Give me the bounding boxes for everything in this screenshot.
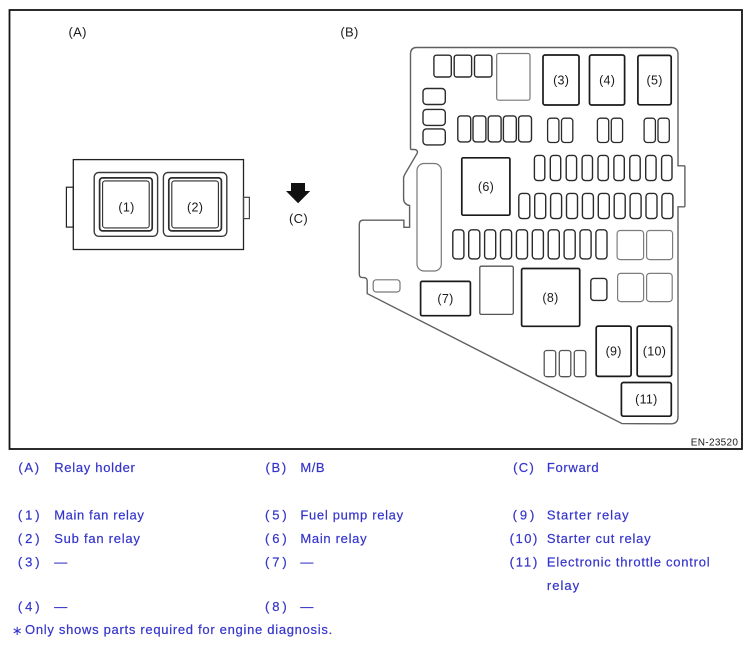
svg-text:Sub fan relay: Sub fan relay bbox=[54, 531, 140, 546]
svg-text:(A): (A) bbox=[68, 25, 86, 40]
svg-text:(3): (3) bbox=[553, 74, 569, 88]
svg-text:(2): (2) bbox=[187, 201, 203, 215]
svg-text:(1): (1) bbox=[18, 508, 40, 523]
svg-text:—: — bbox=[300, 599, 313, 614]
svg-text:(7): (7) bbox=[437, 292, 453, 306]
svg-text:Fuel pump relay: Fuel pump relay bbox=[300, 508, 403, 523]
svg-text:—: — bbox=[54, 599, 67, 614]
svg-text:(7): (7) bbox=[265, 555, 287, 570]
svg-text:(C): (C) bbox=[513, 460, 534, 475]
svg-text:(5): (5) bbox=[647, 74, 663, 88]
svg-text:(B): (B) bbox=[266, 460, 287, 475]
svg-text:EN-23520: EN-23520 bbox=[691, 437, 739, 448]
svg-text:—: — bbox=[300, 555, 313, 570]
svg-text:(2): (2) bbox=[18, 531, 40, 546]
svg-text:Main relay: Main relay bbox=[300, 531, 367, 546]
svg-text:Electronic throttle control: Electronic throttle control bbox=[547, 555, 710, 570]
svg-text:(9): (9) bbox=[606, 345, 622, 359]
svg-text:(4): (4) bbox=[599, 74, 615, 88]
svg-text:(11): (11) bbox=[510, 555, 538, 570]
svg-text:(6): (6) bbox=[478, 180, 494, 194]
svg-text:Relay holder: Relay holder bbox=[54, 460, 135, 475]
svg-text:(3): (3) bbox=[18, 555, 40, 570]
svg-text:(10): (10) bbox=[510, 531, 538, 546]
svg-text:(5): (5) bbox=[265, 508, 287, 523]
svg-text:Only shows parts required for: Only shows parts required for engine dia… bbox=[25, 622, 333, 637]
svg-text:(11): (11) bbox=[635, 393, 658, 407]
svg-text:(6): (6) bbox=[265, 531, 287, 546]
svg-text:(1): (1) bbox=[118, 201, 134, 215]
svg-text:(8): (8) bbox=[265, 599, 287, 614]
svg-text:relay: relay bbox=[547, 578, 580, 593]
svg-text:(10): (10) bbox=[643, 345, 666, 359]
svg-text:∗: ∗ bbox=[12, 623, 23, 638]
svg-text:(8): (8) bbox=[542, 291, 558, 305]
svg-text:—: — bbox=[54, 555, 67, 570]
svg-text:(4): (4) bbox=[18, 599, 40, 614]
svg-text:Forward: Forward bbox=[547, 460, 599, 475]
svg-text:Main fan relay: Main fan relay bbox=[54, 508, 144, 523]
svg-text:(C): (C) bbox=[289, 211, 308, 226]
svg-text:(A): (A) bbox=[18, 460, 39, 475]
svg-text:(B): (B) bbox=[340, 25, 358, 40]
svg-text:Starter cut relay: Starter cut relay bbox=[547, 531, 651, 546]
svg-text:Starter relay: Starter relay bbox=[547, 508, 629, 523]
svg-text:M/B: M/B bbox=[300, 460, 325, 475]
svg-text:(9): (9) bbox=[513, 508, 535, 523]
